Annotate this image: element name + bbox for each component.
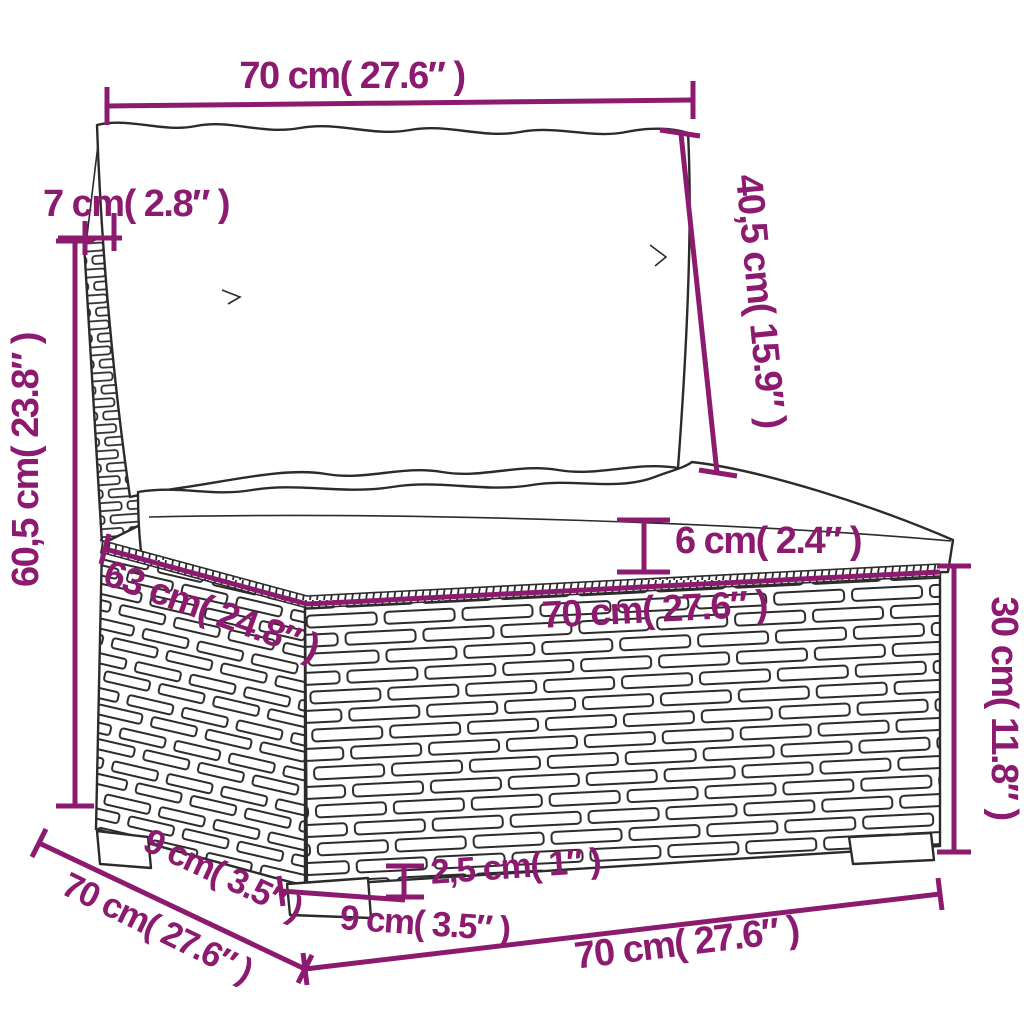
- back-cushion: [97, 123, 690, 497]
- dim-base-height: [937, 566, 971, 852]
- dim-back-panel-thickness-label: 7 cm( 2.8″ ): [43, 183, 229, 225]
- dim-base-height-label: 30 cm( 11.8″ ): [983, 596, 1024, 819]
- sofa-dimension-drawing: 70 cm( 27.6″ ) 7 cm( 2.8″ ) 40,5 cm( 15.…: [0, 0, 1024, 1024]
- front-right-leg: [849, 833, 934, 864]
- dim-seat-cushion-thickness-label: 6 cm( 2.4″ ): [675, 520, 861, 562]
- dimension-diagram: 70 cm( 27.6″ ) 7 cm( 2.8″ ) 40,5 cm( 15.…: [0, 0, 1024, 1024]
- dim-leg-width-label: 9 cm( 3.5″ ): [339, 898, 511, 949]
- dim-total-width-label: 70 cm( 27.6″ ): [572, 909, 801, 978]
- dim-total-height-label: 60,5 cm( 23.8″ ): [5, 333, 47, 587]
- dim-back-cushion-height-label: 40,5 cm( 15.9″ ): [727, 172, 793, 429]
- dim-back-cushion-width-label: 70 cm( 27.6″ ): [239, 55, 464, 97]
